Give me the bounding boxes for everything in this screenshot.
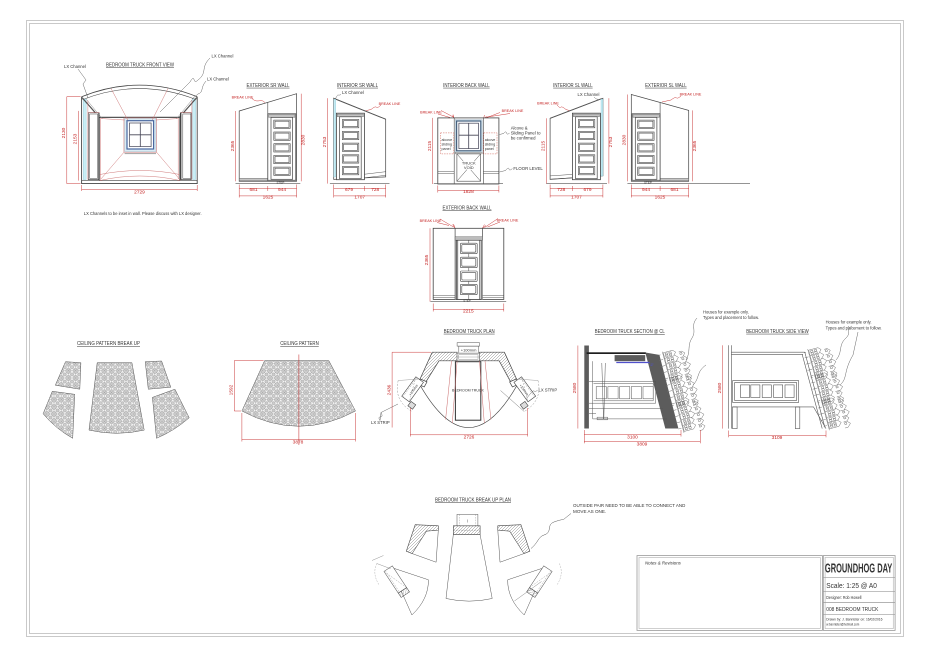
svg-text:2729: 2729 <box>134 189 145 195</box>
svg-text:679: 679 <box>345 187 353 193</box>
svg-text:2580: 2580 <box>572 382 578 393</box>
svg-text:INTERIOR SL WALL: INTERIOR SL WALL <box>553 83 593 89</box>
svg-text:2726: 2726 <box>464 435 475 441</box>
svg-text:3809: 3809 <box>637 441 648 447</box>
svg-text:1707: 1707 <box>354 195 365 201</box>
svg-text:681: 681 <box>249 187 257 193</box>
svg-text:1707: 1707 <box>571 195 582 201</box>
svg-text:INTERIOR SR WALL: INTERIOR SR WALL <box>337 83 378 89</box>
svg-text:LX Channel: LX Channel <box>212 54 234 59</box>
svg-text:CEILING PATTERN: CEILING PATTERN <box>280 341 319 347</box>
svg-text:sliding: sliding <box>485 142 495 146</box>
svg-text:CEILING PATTERN BREAK UP: CEILING PATTERN BREAK UP <box>77 341 141 347</box>
svg-text:alcove: alcove <box>485 138 496 142</box>
svg-text:BREAK LINE: BREAK LINE <box>537 101 559 105</box>
svg-text:3100: 3100 <box>627 434 638 440</box>
svg-text:BEDROOM TRUCK SECTION @ CL: BEDROOM TRUCK SECTION @ CL <box>595 329 665 335</box>
svg-text:3109: 3109 <box>772 435 783 441</box>
svg-text:2365: 2365 <box>230 140 236 151</box>
svg-text:BREAK LINE: BREAK LINE <box>420 219 442 223</box>
svg-text:BEDROOM TRUCK BREAK UP PLAN: BEDROOM TRUCK BREAK UP PLAN <box>435 498 511 504</box>
svg-text:2365: 2365 <box>692 140 698 151</box>
svg-text:alcove: alcove <box>442 138 453 142</box>
svg-text:EXTERIOR SR WALL: EXTERIOR SR WALL <box>247 83 290 89</box>
svg-text:LX Channels to be inset in wal: LX Channels to be inset in wall. Please … <box>84 211 202 216</box>
svg-text:2436: 2436 <box>386 384 392 395</box>
svg-text:panel: panel <box>442 147 451 151</box>
svg-text:1592: 1592 <box>229 384 235 395</box>
svg-text:2830: 2830 <box>622 134 628 145</box>
svg-text:LX Channel: LX Channel <box>342 90 364 95</box>
svg-text:VOID: VOID <box>464 165 474 170</box>
svg-text:2365: 2365 <box>424 254 430 265</box>
svg-text:panel: panel <box>485 147 494 151</box>
svg-text:2580: 2580 <box>717 382 723 393</box>
svg-text:944: 944 <box>642 187 650 193</box>
svg-text:Drawn by: J. Bannister on: 16/: Drawn by: J. Bannister on: 16/02/2016 <box>826 617 882 621</box>
svg-text:LX Channel: LX Channel <box>578 92 600 97</box>
svg-text:BREAK LINE: BREAK LINE <box>232 95 254 99</box>
svg-text:728: 728 <box>557 187 565 193</box>
svg-text:2753: 2753 <box>608 136 614 147</box>
svg-text:Types and placement to follow.: Types and placement to follow. <box>703 315 759 320</box>
svg-text:Notes & Revisions: Notes & Revisions <box>645 561 682 566</box>
svg-text:1828: 1828 <box>463 189 474 195</box>
svg-text:LX Channel: LX Channel <box>64 64 86 69</box>
svg-text:Houses for example only.: Houses for example only. <box>703 310 749 315</box>
svg-text:BREAK LINE: BREAK LINE <box>420 110 442 114</box>
svg-text:2115: 2115 <box>427 141 433 152</box>
svg-text:LX Channel: LX Channel <box>207 77 229 82</box>
svg-text:Houses for example only.: Houses for example only. <box>826 320 872 325</box>
svg-text:681: 681 <box>670 187 678 193</box>
svg-text:LX STRIP: LX STRIP <box>539 388 558 393</box>
svg-text:INTERIOR BACK WALL: INTERIOR BACK WALL <box>443 83 490 89</box>
svg-text:EXTERIOR BACK WALL: EXTERIOR BACK WALL <box>443 205 492 211</box>
svg-text:1625: 1625 <box>655 195 666 201</box>
svg-text:sliding: sliding <box>442 142 452 146</box>
svg-text:BREAK LINE: BREAK LINE <box>502 109 524 113</box>
svg-text:008 BEDROOM TRUCK: 008 BEDROOM TRUCK <box>826 607 878 613</box>
svg-text:BEDROOM TRUCK FRONT VIEW: BEDROOM TRUCK FRONT VIEW <box>106 63 174 69</box>
svg-text:OUTSIDE PAIR NEED TO BE ABLE T: OUTSIDE PAIR NEED TO BE ABLE TO CONNECT … <box>573 503 686 508</box>
svg-text:3878: 3878 <box>293 439 304 445</box>
svg-text:LX STRIP: LX STRIP <box>371 420 390 425</box>
svg-text:MOVE AS ONE.: MOVE AS ONE. <box>573 509 606 514</box>
svg-text:2115: 2115 <box>541 141 547 152</box>
svg-text:+100mm: +100mm <box>461 347 477 352</box>
svg-text:1625: 1625 <box>263 195 274 201</box>
svg-text:2753: 2753 <box>322 136 328 147</box>
svg-text:2830: 2830 <box>301 134 307 145</box>
svg-text:Designer: Rob Howell: Designer: Rob Howell <box>826 595 861 600</box>
svg-text:w.bannister@hotmail.com: w.bannister@hotmail.com <box>826 622 859 626</box>
svg-text:BEDROOM TRUCK PLAN: BEDROOM TRUCK PLAN <box>444 329 495 335</box>
svg-text:EXTERIOR SL WALL: EXTERIOR SL WALL <box>645 83 687 89</box>
svg-text:BREAK LINE: BREAK LINE <box>379 102 401 106</box>
svg-text:BEDROOM TRUCK: BEDROOM TRUCK <box>452 389 484 393</box>
svg-text:BREAK LINE: BREAK LINE <box>497 218 519 222</box>
svg-text:BREAK LINE: BREAK LINE <box>680 92 702 96</box>
svg-text:728: 728 <box>371 187 379 193</box>
svg-text:GROUNDHOG DAY: GROUNDHOG DAY <box>825 560 893 575</box>
svg-text:2153: 2153 <box>72 133 78 144</box>
svg-text:Scale: 1:25 @ A0: Scale: 1:25 @ A0 <box>826 583 877 590</box>
svg-text:FLOOR LEVEL: FLOOR LEVEL <box>513 166 543 171</box>
svg-text:2130: 2130 <box>61 127 67 138</box>
svg-text:be confirmed: be confirmed <box>511 136 536 141</box>
svg-text:Types and placement to follow.: Types and placement to follow. <box>826 326 882 331</box>
svg-text:679: 679 <box>583 187 591 193</box>
svg-text:BEDROOM TRUCK SIDE VIEW: BEDROOM TRUCK SIDE VIEW <box>746 329 809 335</box>
svg-text:944: 944 <box>278 187 286 193</box>
svg-text:2215: 2215 <box>463 308 474 314</box>
